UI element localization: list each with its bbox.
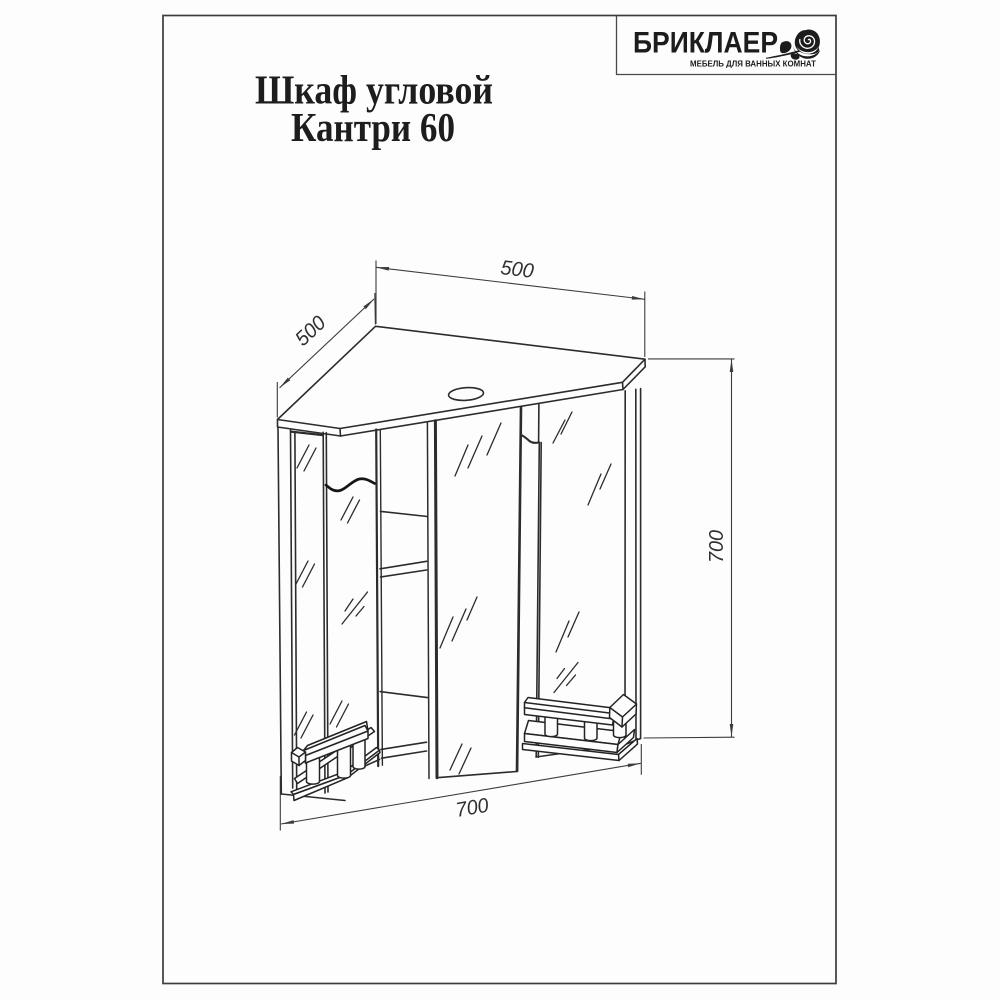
svg-text:500: 500	[499, 256, 535, 283]
svg-text:МЕБЕЛЬ ДЛЯ ВАННЫХ КОМНАТ: МЕБЕЛЬ ДЛЯ ВАННЫХ КОМНАТ	[690, 60, 816, 69]
svg-text:Кантри 60: Кантри 60	[291, 104, 455, 150]
svg-text:БРИКЛАЕР: БРИКЛАЕР	[633, 27, 778, 60]
svg-text:700: 700	[705, 529, 728, 563]
